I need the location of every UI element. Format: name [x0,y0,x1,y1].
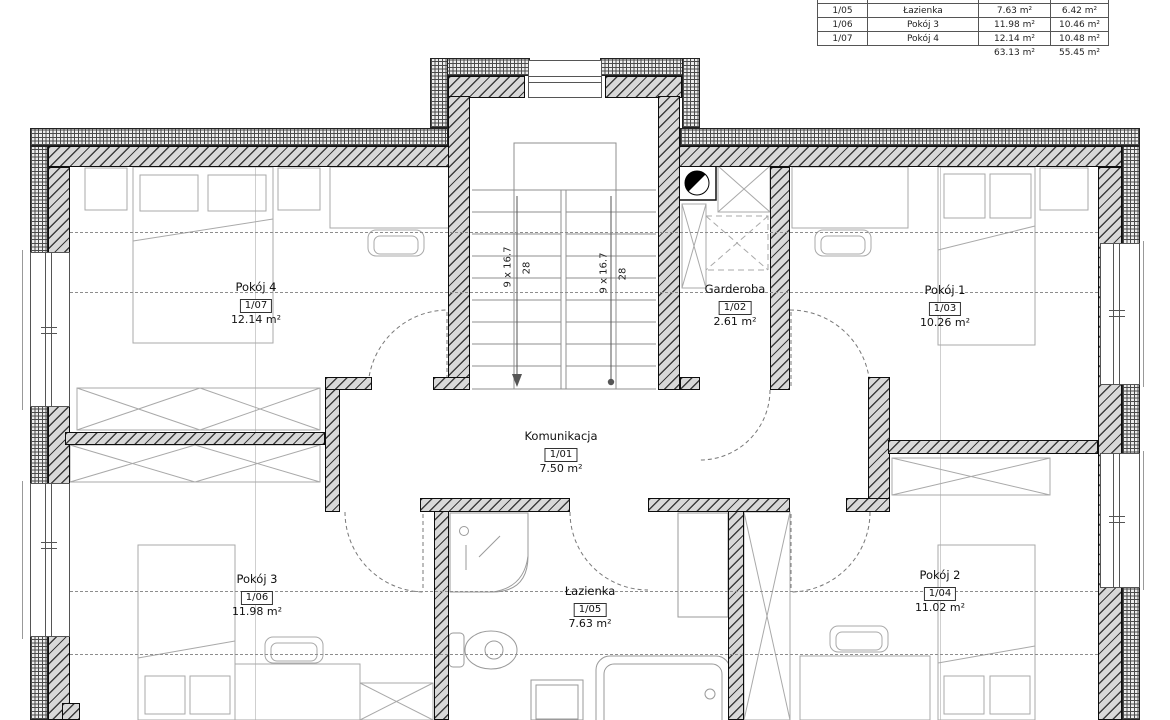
window-sill [1143,241,1144,387]
room-area: 10.26 m² [920,317,970,329]
window-sill [1143,451,1144,590]
room-area-cell: 7.63 m² [979,4,1051,18]
room-number-badge: 1/05 [574,603,606,617]
wall-segment [728,508,744,720]
table-row: 1/06 Pokój 3 11.98 m² 10.46 m² [818,18,1109,32]
room-name: Pokój 1 [920,284,970,297]
wall-segment [434,508,449,720]
floor-plan: Pokój 4 1/07 12.14 m² Garderoba 1/02 2.6… [0,0,1170,720]
wall-segment [430,58,448,128]
wall-segment [770,167,790,390]
room-label-komunikacja: Komunikacja 1/01 7.50 m² [524,430,597,475]
wall-segment [448,96,470,390]
room-name: Pokój 2 [915,569,965,582]
room-area: 11.98 m² [232,606,282,618]
toilet-tank [449,633,464,667]
wall-segment [868,377,890,512]
ceiling-height-dashed-line [70,232,1098,233]
wall-segment [325,377,340,512]
room-area: 7.63 m² [565,618,616,630]
room-number-badge: 1/02 [719,301,751,315]
door-arc-wardrobe [700,390,770,460]
room-name: Pokój 3 [232,573,282,586]
room-name: Pokój 4 [231,281,281,294]
room-no-cell: 1/07 [818,32,868,46]
stair-walkline-start-dot [608,379,614,385]
window-right-upper [1100,243,1140,385]
room-number-badge: 1/04 [924,587,956,601]
wardrobe-room-contents [678,166,770,288]
table-row: 1/07 Pokój 4 12.14 m² 10.48 m² [818,32,1109,46]
room-no-cell: 1/05 [818,4,868,18]
room-label-pokoj3: Pokój 3 1/06 11.98 m² [232,573,282,618]
wall-segment [658,146,1122,167]
room-name-cell: Pokój 4 [868,32,979,46]
room-label-pokoj1: Pokój 1 1/03 10.26 m² [920,284,970,329]
room-label-pokoj4: Pokój 4 1/07 12.14 m² [231,281,281,326]
room-name: Garderoba [705,283,766,296]
wall-segment [648,498,790,512]
room-area: 11.02 m² [915,602,965,614]
room-label-pokoj2: Pokój 2 1/04 11.02 m² [915,569,965,614]
door-arc-bathroom [570,512,648,590]
shower-tray [450,513,528,592]
wall-segment [325,377,372,390]
wall-segment [1122,146,1140,720]
total-usable-cell: 55.45 m² [1051,46,1109,60]
wall-segment [658,96,680,390]
wall-segment [888,440,1098,454]
stair-width-label-left: 28 [522,262,533,275]
sink [531,680,583,720]
window-left-upper [30,252,70,407]
door-arc-room2 [790,512,870,592]
wall-segment [62,703,80,720]
room-name-cell: Łazienka [868,4,979,18]
door-arc-room3 [345,512,425,592]
wall-segment [48,146,470,167]
room-area: 12.14 m² [231,314,281,326]
room-name: Komunikacja [524,430,597,443]
room-name: Łazienka [565,585,616,598]
wall-segment [30,128,448,146]
room-usable-cell: 10.46 m² [1051,18,1109,32]
table-totals-row: 63.13 m² 55.45 m² [818,46,1109,60]
stair-flight-label-right: 9 x 16.7 [599,253,610,294]
room-label-lazienka: Łazienka 1/05 7.63 m² [565,585,616,630]
room-area: 7.50 m² [524,463,597,475]
room-label-garderoba: Garderoba 1/02 2.61 m² [705,283,766,328]
wall-segment [846,498,890,512]
room-usable-cell: 10.48 m² [1051,32,1109,46]
bathtub [596,656,730,720]
door-arcs [345,310,870,592]
wall-segment [682,58,700,128]
wall-segment [433,377,470,390]
window-left-lower [30,483,70,637]
table-row: 1/05 Łazienka 7.63 m² 6.42 m² [818,4,1109,18]
stair-flight-label-left: 9 x 16.7 [503,247,514,288]
total-area-cell: 63.13 m² [979,46,1051,60]
room-area-cell: 11.98 m² [979,18,1051,32]
wall-segment [605,76,682,98]
room-area: 2.61 m² [705,316,766,328]
window-sill [22,481,23,639]
wall-segment [448,76,525,98]
room-number-badge: 1/07 [240,299,272,313]
area-table: 1/05 Łazienka 7.63 m² 6.42 m² 1/06 Pokój… [817,0,1109,59]
room-number-badge: 1/06 [241,591,273,605]
window-right-lower [1100,453,1140,588]
wall-segment [680,128,1140,146]
shower-head-icon [460,527,469,536]
room-no-cell: 1/06 [818,18,868,32]
window-stairwell [528,60,602,98]
ceiling-height-dashed-line [70,654,1098,655]
room-number-badge: 1/01 [545,448,577,462]
door-arc-room1 [790,310,870,390]
wall-segment [680,377,700,390]
room-name-cell: Pokój 3 [868,18,979,32]
window-sill [22,250,23,410]
toilet-bowl [465,631,517,669]
stair-landing [514,143,616,190]
wall-segment [420,498,570,512]
washing-machine [678,513,728,617]
room-number-badge: 1/03 [929,302,961,316]
stair-width-label-right: 28 [618,268,629,281]
room-area-cell: 12.14 m² [979,32,1051,46]
stairs [472,143,656,389]
room-usable-cell: 6.42 m² [1051,4,1109,18]
wall-segment [65,432,325,445]
